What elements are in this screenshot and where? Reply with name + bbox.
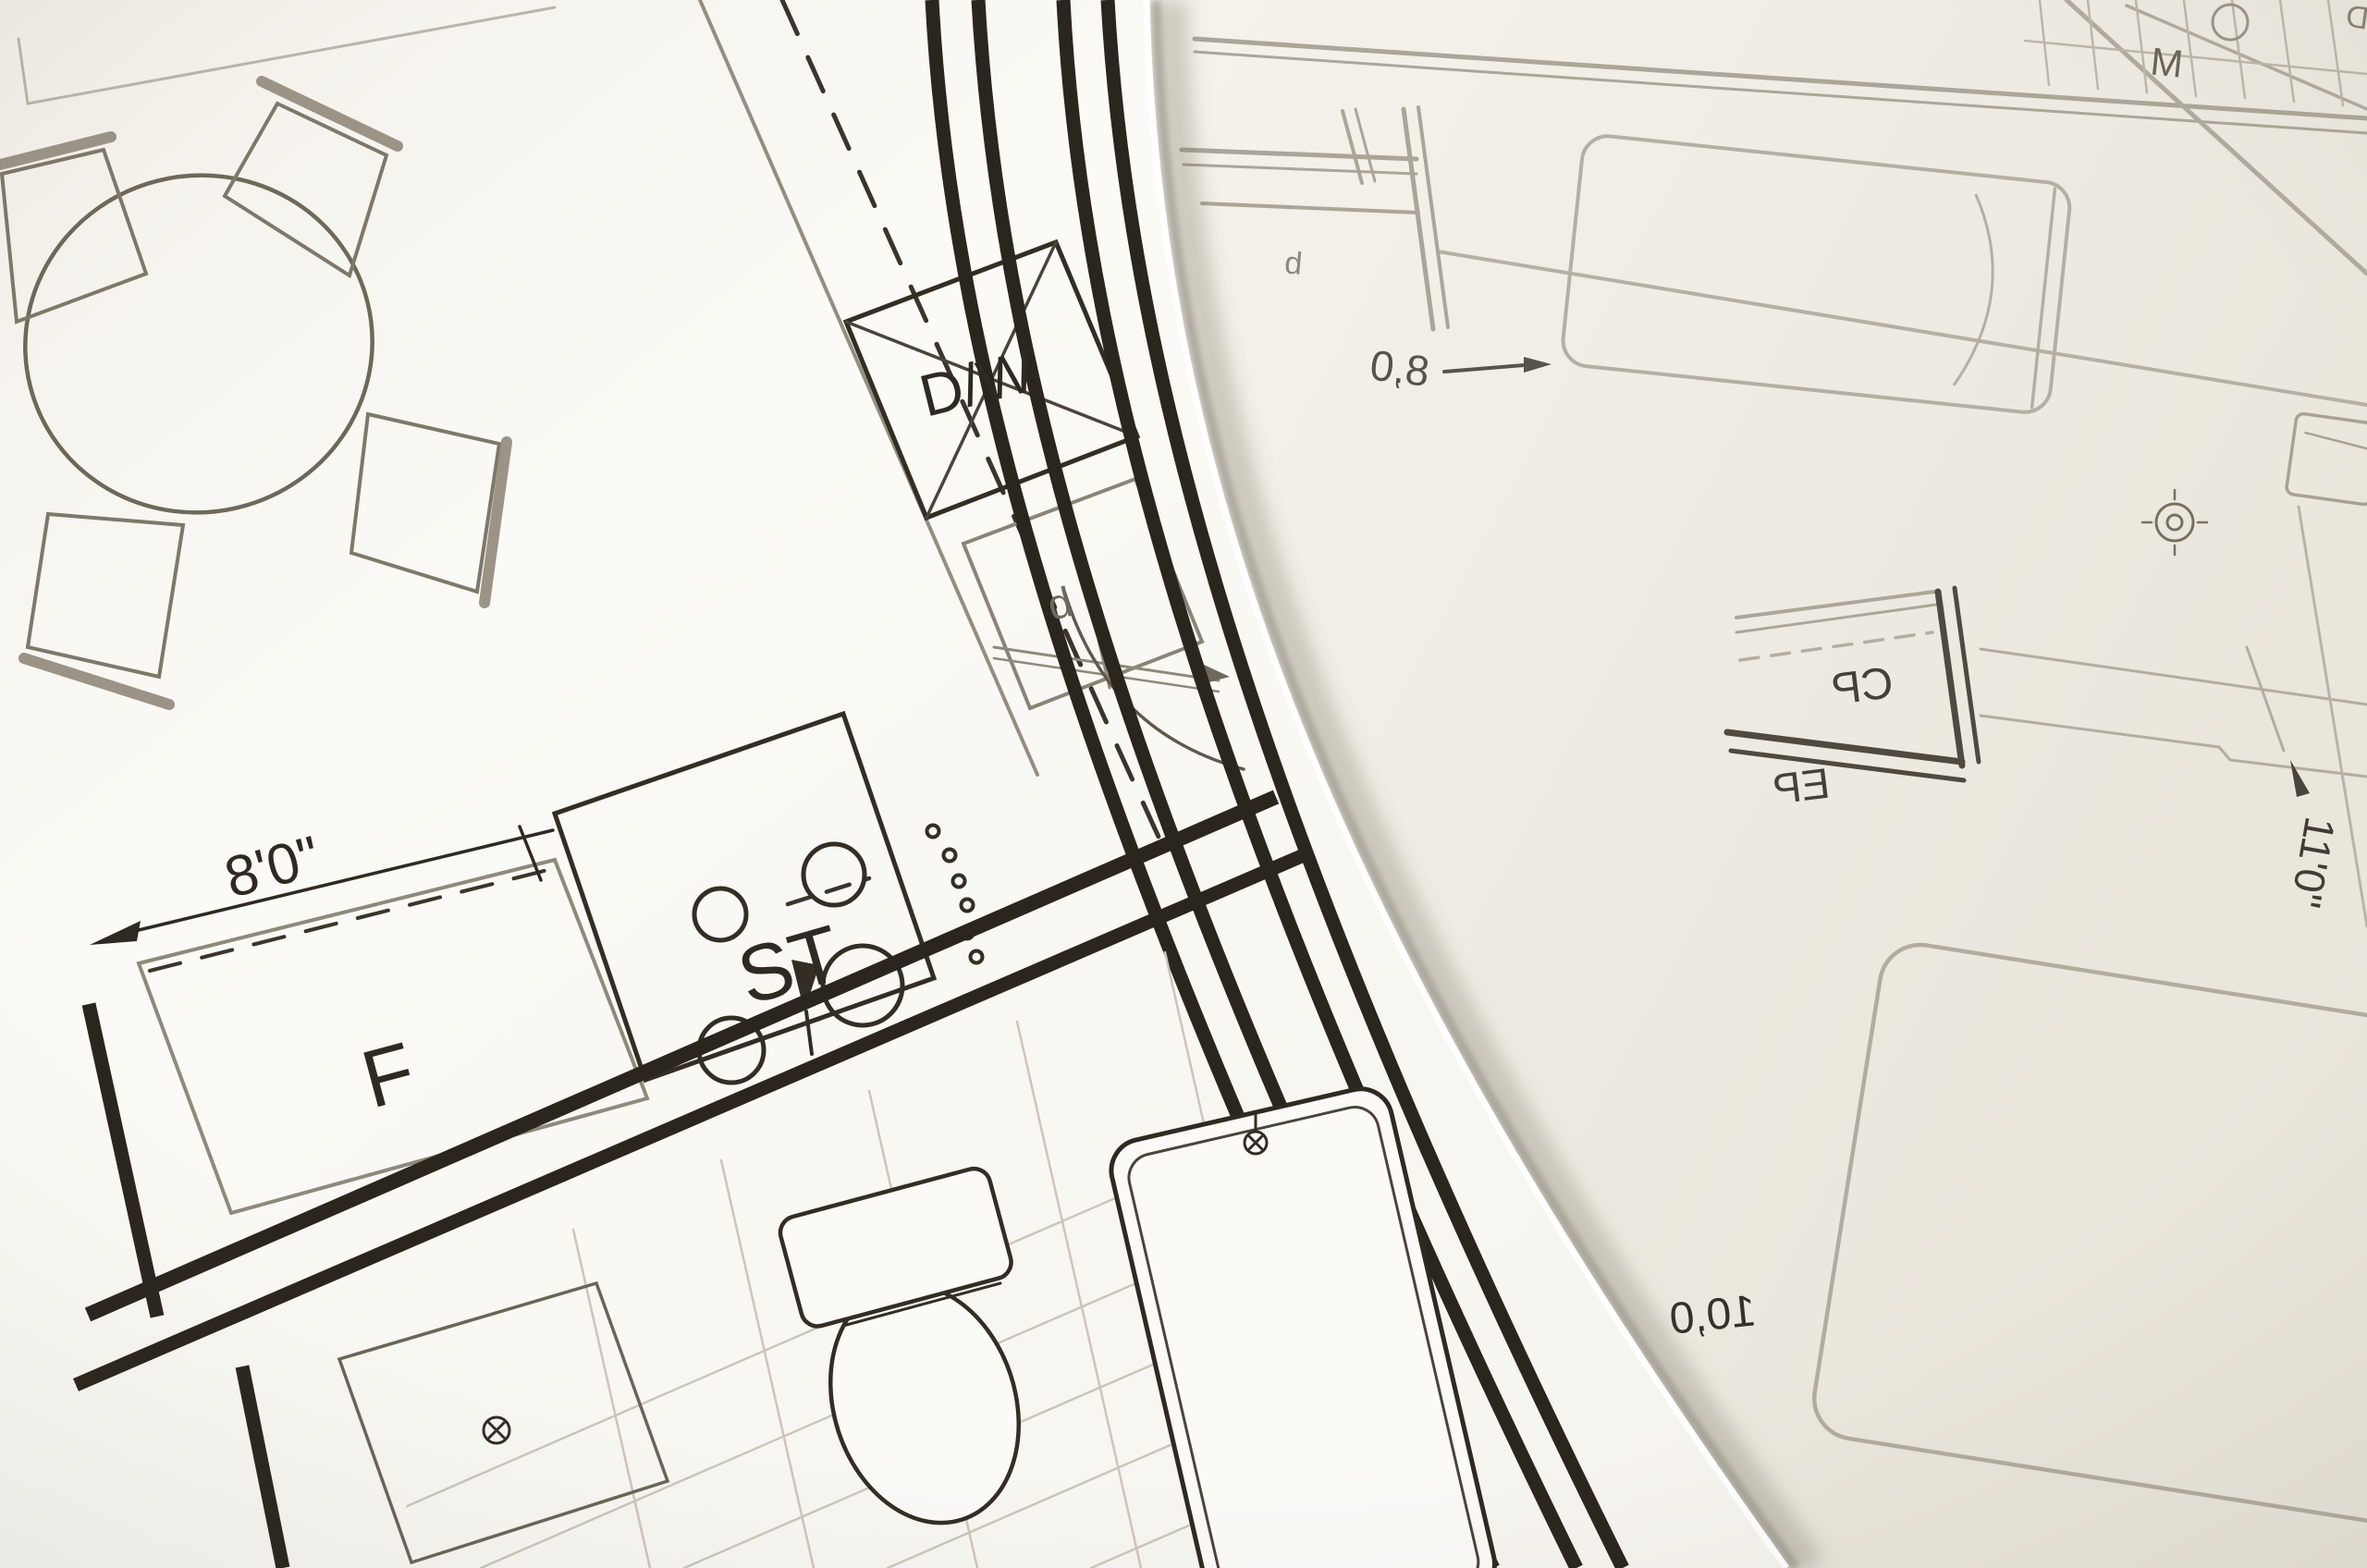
blueprint-photo: M D b 8,0 CP EP 11'0" 10,0 (0, 0, 2367, 1568)
floorplan-scene: M D b 8,0 CP EP 11'0" 10,0 (0, 0, 2367, 1568)
photo-vignette (0, 0, 2367, 1568)
